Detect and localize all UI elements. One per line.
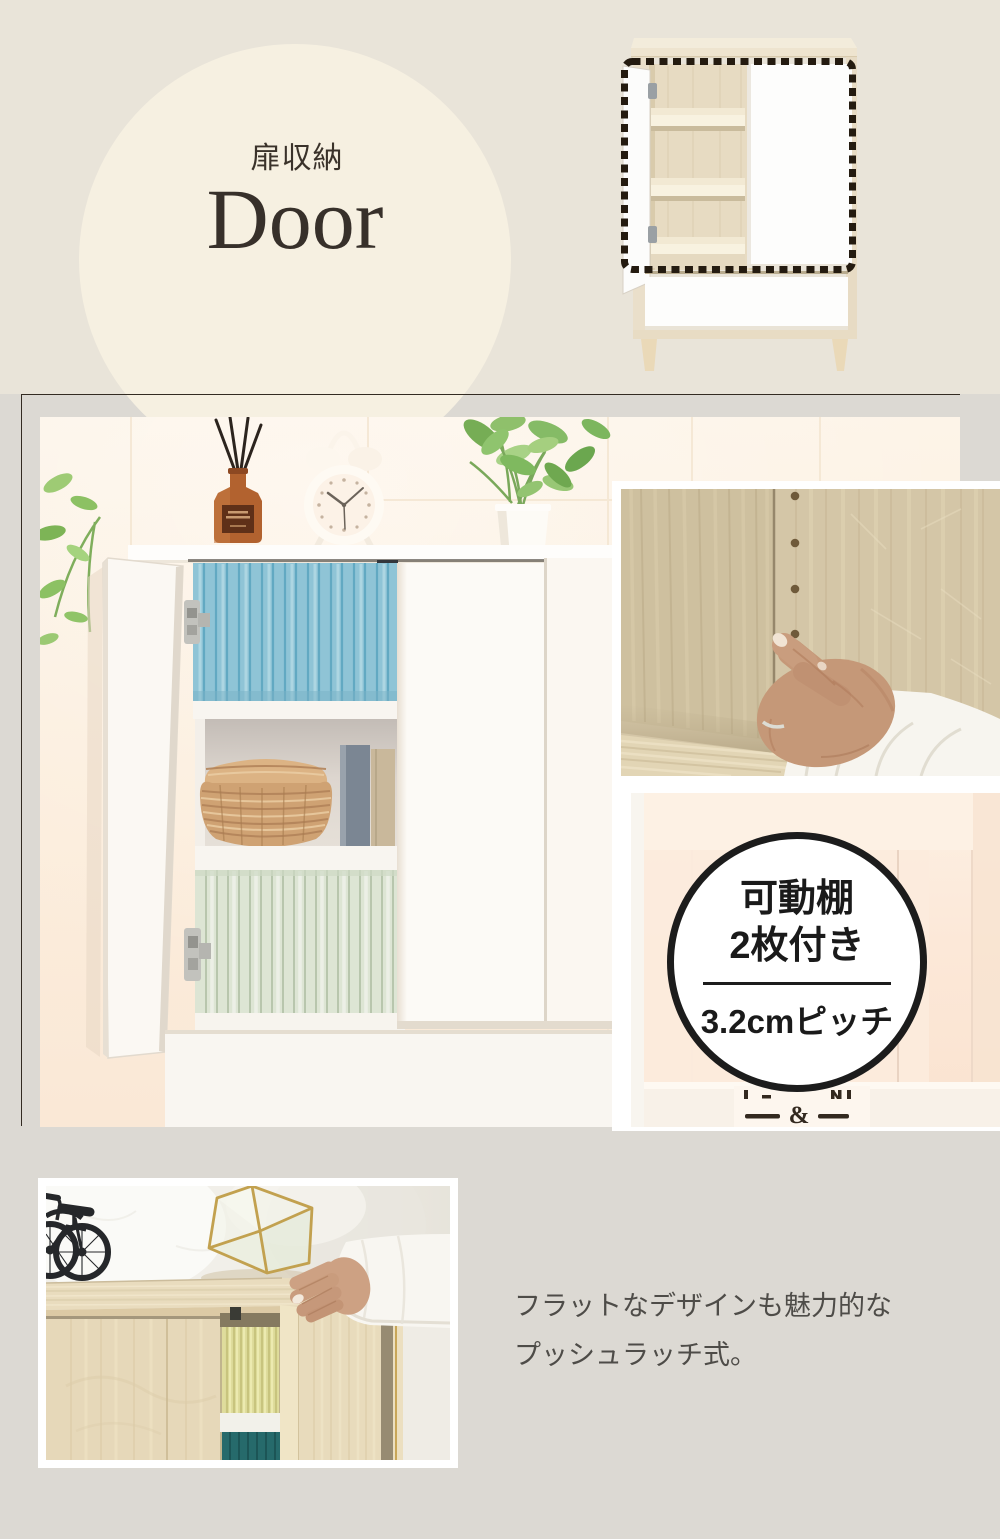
svg-text:&: & (789, 1102, 810, 1127)
